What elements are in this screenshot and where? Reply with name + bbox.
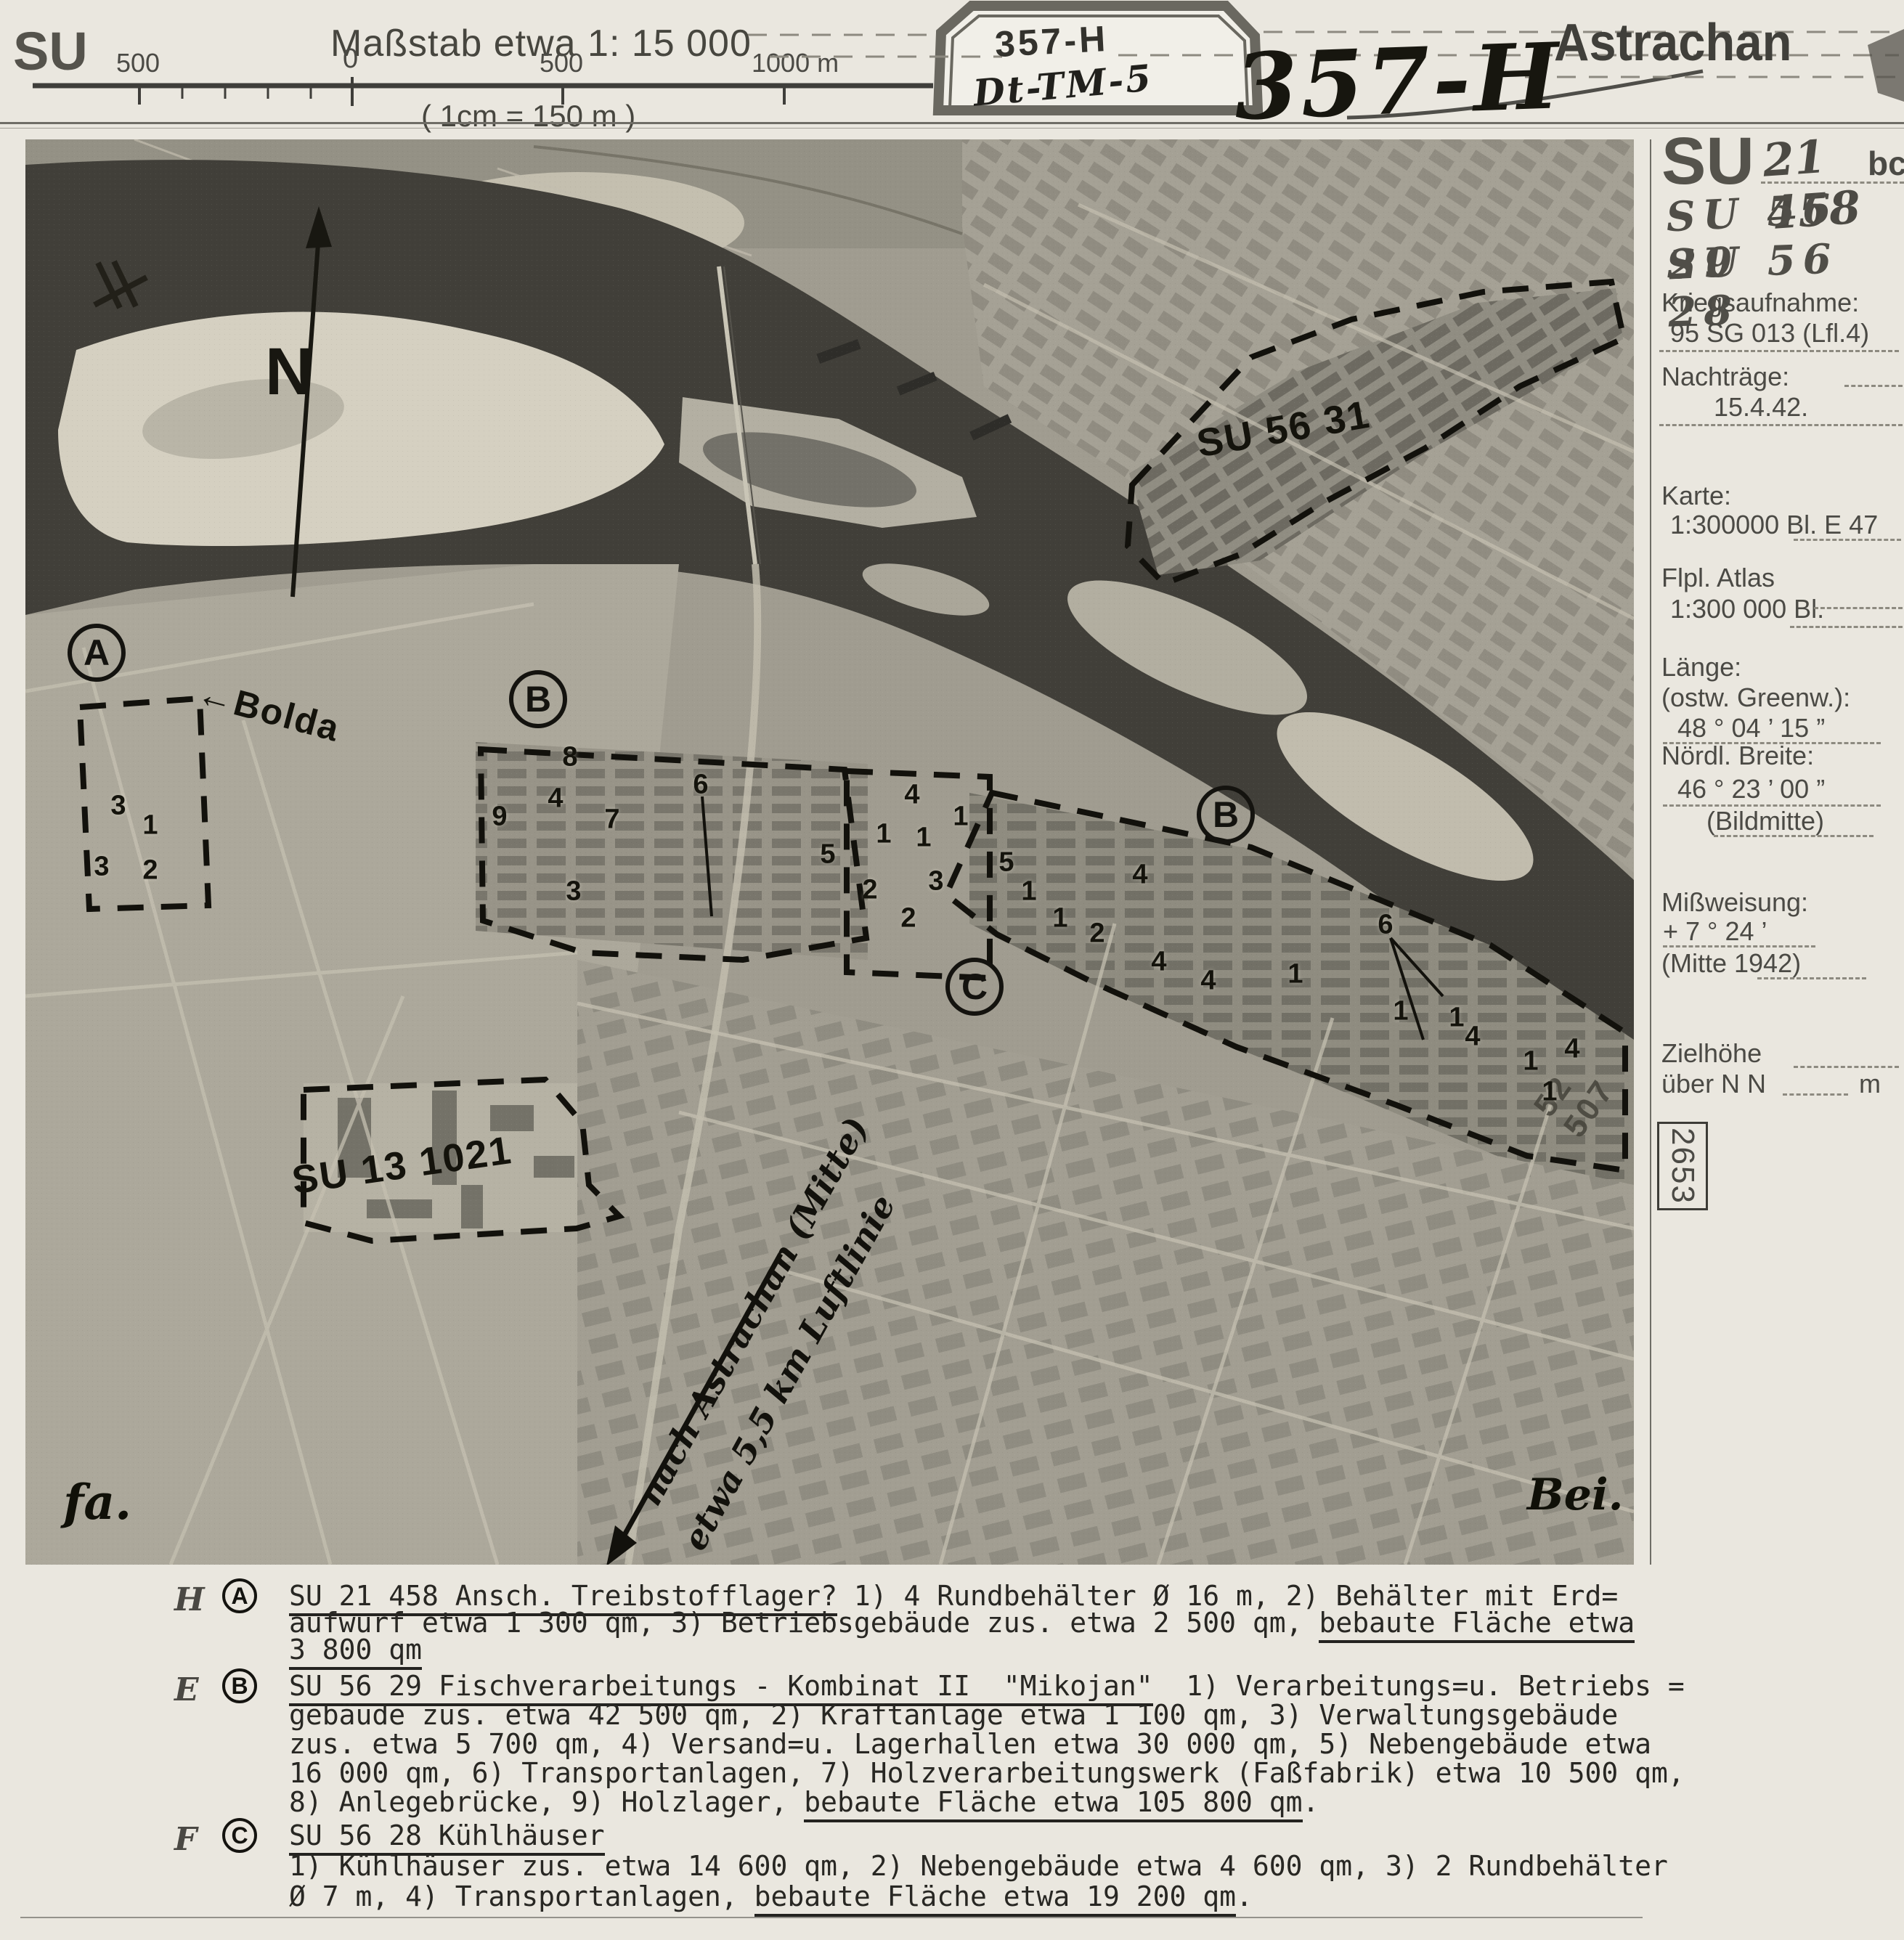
map-number: 2	[1089, 918, 1104, 950]
breite-note: (Bildmitte)	[1706, 806, 1824, 836]
breite-label: Nördl. Breite:	[1661, 741, 1814, 771]
caption-text: zus. etwa 5 700 qm, 4) Versand=u. Lagerh…	[289, 1728, 1651, 1760]
rule-krieg	[1659, 350, 1899, 352]
map-number: 4	[1564, 1034, 1579, 1065]
zielhoehe-label-1: Zielhöhe	[1661, 1038, 1762, 1069]
map-number: 1	[1287, 959, 1303, 990]
map-number: 1	[1449, 1003, 1464, 1034]
caption-underlined-text: 3 800 qm	[289, 1634, 422, 1670]
caption-line: gebäude zus. etwa 42 500 qm, 2) Kraftanl…	[289, 1699, 1618, 1731]
margin-letter-A: H	[174, 1581, 205, 1618]
header-rule-2	[0, 128, 1904, 129]
kriegsaufnahme-label: Kriegsaufnahme:	[1661, 288, 1859, 318]
map-number: 1	[1393, 996, 1408, 1027]
rule-zielhoehe-2	[1783, 1093, 1848, 1096]
rule-nach-1	[1844, 385, 1903, 387]
footer-rule	[20, 1917, 1643, 1918]
missweisung-value: + 7 ° 24 ’	[1663, 916, 1767, 947]
atlas-value: 1:300 000 Bl.	[1670, 594, 1824, 624]
header-rule-1	[0, 122, 1904, 124]
map-number: 1	[876, 819, 891, 850]
missweisung-note: (Mitte 1942)	[1661, 948, 1801, 979]
map-number: 8	[562, 742, 577, 773]
map-number: 1	[1021, 876, 1036, 908]
breite-value: 46 ° 23 ’ 00 ”	[1677, 774, 1825, 804]
caption-circle-A: A	[222, 1578, 257, 1613]
caption-line: 1) Kühlhäuser zus. etwa 14 600 qm, 2) Ne…	[289, 1850, 1668, 1882]
map-number: 5	[820, 839, 835, 871]
zielhoehe-label-2: über N N	[1661, 1069, 1766, 1099]
rule-karte	[1794, 539, 1901, 541]
laenge-label: Länge:	[1661, 652, 1741, 682]
map-number: 7	[604, 804, 619, 836]
caption-underlined-text: bebaute Fläche etwa 19 200 qm	[754, 1880, 1236, 1917]
map-number: 5	[998, 847, 1014, 879]
rule-bildmitte	[1714, 835, 1874, 837]
zielhoehe-unit: m	[1859, 1069, 1881, 1099]
atlas-label: Flpl. Atlas	[1661, 563, 1775, 593]
map-number: 4	[1151, 947, 1166, 978]
map-number: 4	[1132, 860, 1147, 891]
caption-text: 16 000 qm, 6) Transportanlagen, 7) Holzv…	[289, 1757, 1685, 1789]
sidebar-su-suffix: bc	[1868, 144, 1904, 183]
recon-photo-sheet: SU Maßstab etwa 1: 15 000 500 0 500 1000…	[0, 0, 1904, 1940]
map-number: 1	[1542, 1077, 1557, 1108]
caption-text: Ø 7 m, 4) Transportanlagen,	[289, 1880, 754, 1912]
map-number: 3	[94, 852, 109, 883]
map-number: 4	[548, 783, 563, 815]
map-numbers: 313284796534111322511424416114141	[25, 139, 1634, 1565]
rule-nach-2	[1659, 424, 1903, 426]
map-number: 3	[110, 791, 126, 822]
stamp-number: 357-H	[994, 17, 1110, 65]
caption-text: .	[1303, 1786, 1319, 1818]
caption-text: gebäude zus. etwa 42 500 qm, 2) Kraftanl…	[289, 1699, 1618, 1731]
rule-atlas-1	[1814, 607, 1903, 609]
missweisung-label: Mißweisung:	[1661, 887, 1808, 918]
caption-text: 1) Kühlhäuser zus. etwa 14 600 qm, 2) Ne…	[289, 1850, 1668, 1882]
aerial-photo: N ←Bolda SU 56 31 SU 13 1021 nach Astrac…	[25, 139, 1634, 1565]
map-number: 1	[1052, 903, 1067, 934]
rule-mitte1942	[1757, 977, 1866, 979]
caption-line: zus. etwa 5 700 qm, 4) Versand=u. Lagerh…	[289, 1728, 1651, 1760]
rule-missweisung	[1663, 945, 1815, 947]
caption-underlined-text: bebaute Fläche etwa 105 800 qm	[804, 1786, 1302, 1822]
archive-number: 2653	[1664, 1128, 1701, 1205]
map-number: 2	[900, 903, 916, 934]
karte-value: 1:300000 Bl. E 47	[1670, 510, 1878, 540]
caption-circle-C: C	[222, 1818, 257, 1853]
map-number: 1	[142, 810, 158, 841]
sidebar-su-label: SU	[1661, 123, 1754, 200]
margin-letter-C: F	[174, 1821, 197, 1858]
map-number: 6	[1378, 910, 1393, 941]
karte-label: Karte:	[1661, 481, 1731, 511]
page-title: Astrachan	[1554, 13, 1791, 73]
map-number: 4	[904, 780, 919, 811]
caption-line: 8) Anlegebrücke, 9) Holzlager, bebaute F…	[289, 1786, 1319, 1818]
map-number: 2	[142, 855, 158, 887]
caption-line: 16 000 qm, 6) Transportanlagen, 7) Holzv…	[289, 1757, 1685, 1789]
laenge-sub: (ostw. Greenw.):	[1661, 682, 1850, 713]
map-number: 1	[1523, 1046, 1538, 1077]
caption-text: 1) Verarbeitungs=u. Betriebs =	[1153, 1670, 1685, 1702]
caption-text: aufwurf etwa 1 300 qm, 3) Betriebsgebäud…	[289, 1607, 1319, 1639]
rule-zielhoehe-1	[1794, 1066, 1899, 1068]
nachtraege-label: Nachträge:	[1661, 362, 1789, 392]
caption-line: 3 800 qm	[289, 1634, 422, 1666]
map-number: 6	[693, 770, 708, 801]
caption-line: Ø 7 m, 4) Transportanlagen, bebaute Fläc…	[289, 1880, 1253, 1912]
caption-underlined-text: bebaute Fläche etwa	[1319, 1607, 1635, 1643]
caption-text: .	[1236, 1880, 1253, 1912]
caption-line: SU 56 29 Fischverarbeitungs - Kombinat I…	[289, 1670, 1685, 1702]
kriegsaufnahme-value: 95 SG 013 (Lfl.4)	[1670, 318, 1869, 349]
caption-line: SU 56 28 Kühlhäuser	[289, 1819, 605, 1851]
nachtraege-value: 15.4.42.	[1714, 392, 1808, 423]
sidebar-rule	[1650, 139, 1651, 1565]
map-number: 3	[566, 876, 581, 908]
map-number: 4	[1200, 966, 1216, 997]
map-number: 1	[953, 802, 968, 833]
archive-number-box: 2653	[1657, 1122, 1708, 1210]
margin-letter-B: E	[174, 1671, 199, 1708]
map-number: 1	[916, 823, 931, 854]
caption-line: aufwurf etwa 1 300 qm, 3) Betriebsgebäud…	[289, 1607, 1635, 1639]
map-number: 4	[1465, 1022, 1480, 1053]
caption-text: 8) Anlegebrücke, 9) Holzlager,	[289, 1786, 804, 1818]
laenge-value: 48 ° 04 ’ 15 ”	[1677, 713, 1825, 743]
caption-circle-B: B	[222, 1668, 257, 1703]
map-number: 3	[928, 866, 943, 897]
map-number: 2	[862, 875, 877, 906]
map-number: 9	[492, 802, 507, 833]
rule-atlas-2	[1790, 626, 1903, 628]
